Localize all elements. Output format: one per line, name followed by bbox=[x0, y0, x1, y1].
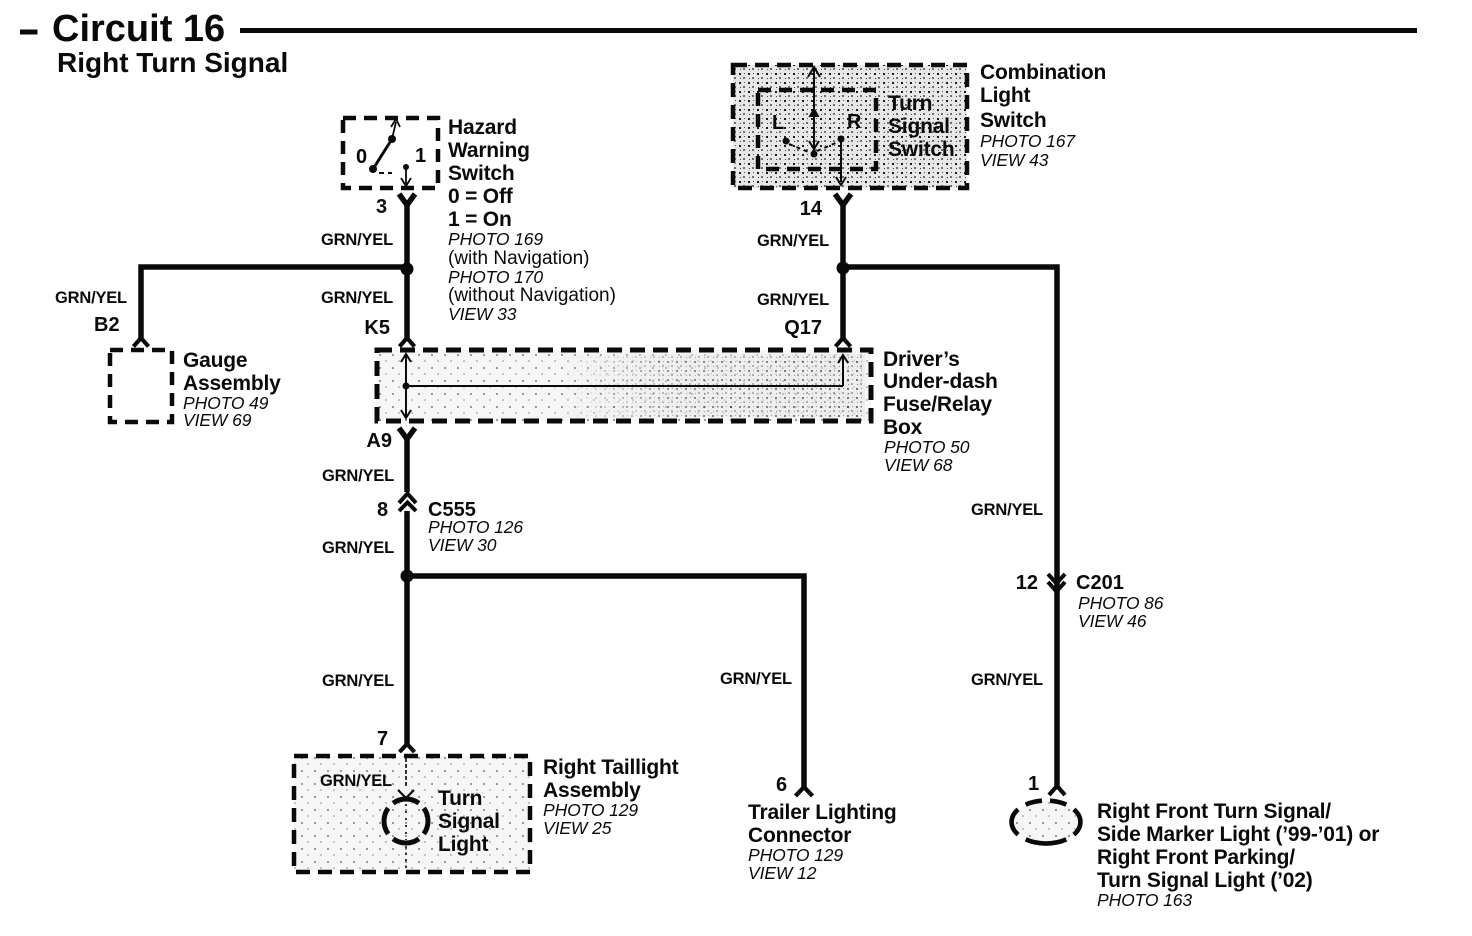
svg-text:B2: B2 bbox=[94, 314, 120, 336]
svg-text:Box: Box bbox=[883, 416, 923, 439]
svg-text:GRN/YEL: GRN/YEL bbox=[757, 291, 829, 309]
svg-text:GRN/YEL: GRN/YEL bbox=[321, 289, 393, 307]
svg-text:Light: Light bbox=[438, 833, 489, 856]
svg-text:Warning: Warning bbox=[448, 139, 530, 162]
svg-text:(without Navigation): (without Navigation) bbox=[448, 285, 616, 306]
svg-text:(with Navigation): (with Navigation) bbox=[448, 248, 590, 269]
svg-text:VIEW 33: VIEW 33 bbox=[448, 304, 517, 324]
svg-text:GRN/YEL: GRN/YEL bbox=[321, 231, 393, 249]
svg-text:Circuit 16: Circuit 16 bbox=[52, 8, 225, 50]
svg-text:7: 7 bbox=[377, 728, 388, 750]
svg-text:GRN/YEL: GRN/YEL bbox=[55, 289, 127, 307]
svg-text:8: 8 bbox=[377, 499, 388, 521]
svg-text:VIEW 46: VIEW 46 bbox=[1078, 611, 1147, 631]
svg-text:VIEW 43: VIEW 43 bbox=[980, 150, 1049, 170]
svg-text:3: 3 bbox=[376, 196, 387, 218]
svg-text:PHOTO 170: PHOTO 170 bbox=[448, 267, 543, 287]
svg-text:Right Front Turn Signal/: Right Front Turn Signal/ bbox=[1097, 800, 1331, 823]
svg-text:R: R bbox=[847, 111, 862, 133]
svg-text:Signal: Signal bbox=[888, 115, 950, 138]
svg-text:GRN/YEL: GRN/YEL bbox=[971, 671, 1043, 689]
svg-text:1: 1 bbox=[415, 145, 426, 167]
svg-text:Fuse/Relay: Fuse/Relay bbox=[883, 393, 992, 416]
svg-text:Right Turn Signal: Right Turn Signal bbox=[57, 47, 288, 78]
svg-text:VIEW 68: VIEW 68 bbox=[884, 455, 953, 475]
svg-text:12: 12 bbox=[1016, 572, 1038, 594]
svg-text:Q17: Q17 bbox=[784, 317, 822, 339]
svg-text:PHOTO 129: PHOTO 129 bbox=[748, 845, 843, 865]
svg-text:6: 6 bbox=[776, 774, 787, 796]
svg-text:VIEW 69: VIEW 69 bbox=[183, 410, 252, 430]
svg-text:Combination: Combination bbox=[980, 61, 1106, 84]
svg-text:Driver’s: Driver’s bbox=[883, 348, 960, 371]
svg-text:PHOTO 167: PHOTO 167 bbox=[980, 131, 1076, 151]
svg-text:Gauge: Gauge bbox=[183, 349, 247, 372]
svg-text:Right Front Parking/: Right Front Parking/ bbox=[1097, 846, 1295, 869]
svg-text:Signal: Signal bbox=[438, 810, 500, 833]
svg-text:14: 14 bbox=[800, 198, 823, 220]
svg-text:Switch: Switch bbox=[448, 162, 514, 185]
svg-text:1: 1 bbox=[1028, 773, 1039, 795]
svg-text:PHOTO 129: PHOTO 129 bbox=[543, 800, 638, 820]
svg-text:0 = Off: 0 = Off bbox=[448, 185, 514, 208]
svg-text:PHOTO 126: PHOTO 126 bbox=[428, 517, 523, 537]
svg-text:PHOTO 163: PHOTO 163 bbox=[1097, 890, 1192, 910]
svg-text:Connector: Connector bbox=[748, 824, 851, 847]
svg-text:Switch: Switch bbox=[888, 138, 954, 161]
svg-text:GRN/YEL: GRN/YEL bbox=[322, 672, 394, 690]
svg-text:GRN/YEL: GRN/YEL bbox=[720, 670, 792, 688]
svg-text:PHOTO 86: PHOTO 86 bbox=[1078, 593, 1164, 613]
svg-text:PHOTO 169: PHOTO 169 bbox=[448, 229, 543, 249]
svg-text:VIEW 12: VIEW 12 bbox=[748, 863, 817, 883]
svg-text:Assembly: Assembly bbox=[183, 372, 281, 395]
svg-text:Side Marker Light (’99-’01) or: Side Marker Light (’99-’01) or bbox=[1097, 823, 1379, 846]
svg-text:A9: A9 bbox=[366, 430, 392, 452]
svg-text:PHOTO 50: PHOTO 50 bbox=[884, 437, 970, 457]
svg-text:Light: Light bbox=[980, 84, 1031, 107]
svg-text:GRN/YEL: GRN/YEL bbox=[322, 467, 394, 485]
svg-text:K5: K5 bbox=[364, 317, 390, 339]
svg-text:Switch: Switch bbox=[980, 109, 1046, 132]
svg-text:0: 0 bbox=[356, 146, 367, 168]
svg-text:GRN/YEL: GRN/YEL bbox=[322, 539, 394, 557]
svg-text:Turn Signal Light (’02): Turn Signal Light (’02) bbox=[1097, 869, 1313, 892]
svg-text:C201: C201 bbox=[1076, 572, 1124, 594]
svg-text:1 = On: 1 = On bbox=[448, 208, 512, 231]
svg-text:VIEW 25: VIEW 25 bbox=[543, 818, 612, 838]
svg-text:Assembly: Assembly bbox=[543, 779, 641, 802]
svg-text:VIEW 30: VIEW 30 bbox=[428, 535, 497, 555]
svg-text:L: L bbox=[772, 112, 784, 134]
svg-text:GRN/YEL: GRN/YEL bbox=[757, 232, 829, 250]
svg-text:Turn: Turn bbox=[438, 787, 482, 810]
svg-text:Under-dash: Under-dash bbox=[883, 370, 998, 393]
svg-text:Turn: Turn bbox=[888, 92, 932, 115]
svg-text:GRN/YEL: GRN/YEL bbox=[971, 501, 1043, 519]
svg-text:GRN/YEL: GRN/YEL bbox=[320, 772, 392, 790]
svg-text:Hazard: Hazard bbox=[448, 116, 517, 139]
svg-text:Trailer Lighting: Trailer Lighting bbox=[748, 801, 896, 824]
svg-text:Right Taillight: Right Taillight bbox=[543, 756, 679, 779]
